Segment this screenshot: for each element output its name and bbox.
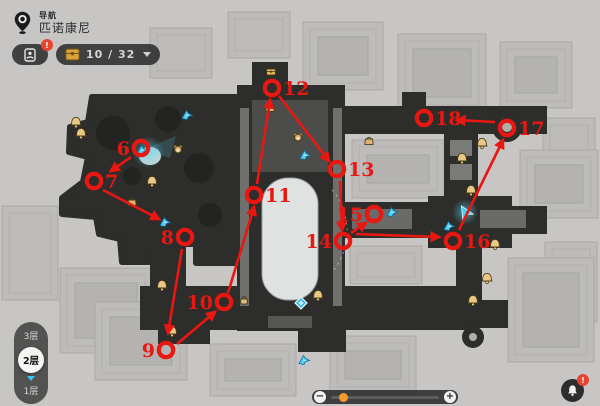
chest-counter-dropdown[interactable]: 10 / 32	[56, 44, 160, 65]
chest-count: 10 / 32	[86, 48, 135, 61]
monkey-icon	[174, 145, 182, 153]
treasure-chest-icon	[267, 69, 276, 75]
location-name: 匹诺康尼	[39, 21, 91, 35]
map-toolbar: ! 10 / 32	[12, 44, 160, 65]
bell-icon	[566, 384, 579, 397]
gallery-icon	[24, 48, 36, 62]
route-marker-number: 7	[105, 171, 118, 193]
alert-bell-button[interactable]: !	[561, 379, 584, 402]
route-marker-number: 17	[518, 118, 544, 140]
alert-badge: !	[577, 374, 589, 386]
floor-button-3[interactable]: 3层	[24, 329, 39, 342]
nav-label: 导航	[39, 11, 91, 21]
route-marker-number: 9	[142, 340, 155, 362]
route-marker-number: 11	[265, 185, 291, 207]
location-pin-icon	[14, 11, 31, 35]
monkey-icon	[294, 133, 302, 141]
chevron-down-icon	[143, 52, 151, 57]
map-header: 导航 匹诺康尼	[14, 11, 91, 35]
route-marker-number: 15	[337, 204, 363, 226]
floor-selector: 3层 2层 1层	[14, 322, 48, 404]
route-marker-number: 12	[283, 78, 309, 100]
zoom-handle[interactable]	[339, 393, 348, 402]
route-marker-number: 16	[464, 231, 490, 253]
bell-icon	[490, 239, 500, 249]
route-marker-number: 6	[117, 138, 130, 160]
route-marker-number: 18	[435, 108, 461, 130]
zoom-track[interactable]	[331, 396, 439, 399]
floor-button-2-selected[interactable]: 2层	[18, 347, 44, 373]
origami-bird-icon	[299, 356, 310, 365]
map-screen: 6789101112131415161718 导航 匹诺康尼 !	[0, 0, 600, 406]
route-marker-number: 10	[187, 292, 213, 314]
floor-indicator-icon	[27, 376, 35, 381]
zoom-out-button[interactable]: −	[314, 391, 326, 403]
route-marker-number: 13	[348, 159, 374, 181]
zoom-slider: − +	[312, 390, 458, 404]
bell-icon	[477, 138, 487, 148]
route-marker-number: 14	[306, 231, 332, 253]
gallery-button[interactable]: !	[12, 44, 48, 65]
loot-bag-icon	[365, 137, 373, 144]
zoom-in-button[interactable]: +	[444, 391, 456, 403]
floor-button-1[interactable]: 1层	[24, 384, 39, 397]
chest-icon	[65, 48, 80, 61]
gallery-badge: !	[41, 39, 53, 51]
bell-icon	[482, 273, 492, 283]
route-marker-number: 8	[161, 227, 174, 249]
